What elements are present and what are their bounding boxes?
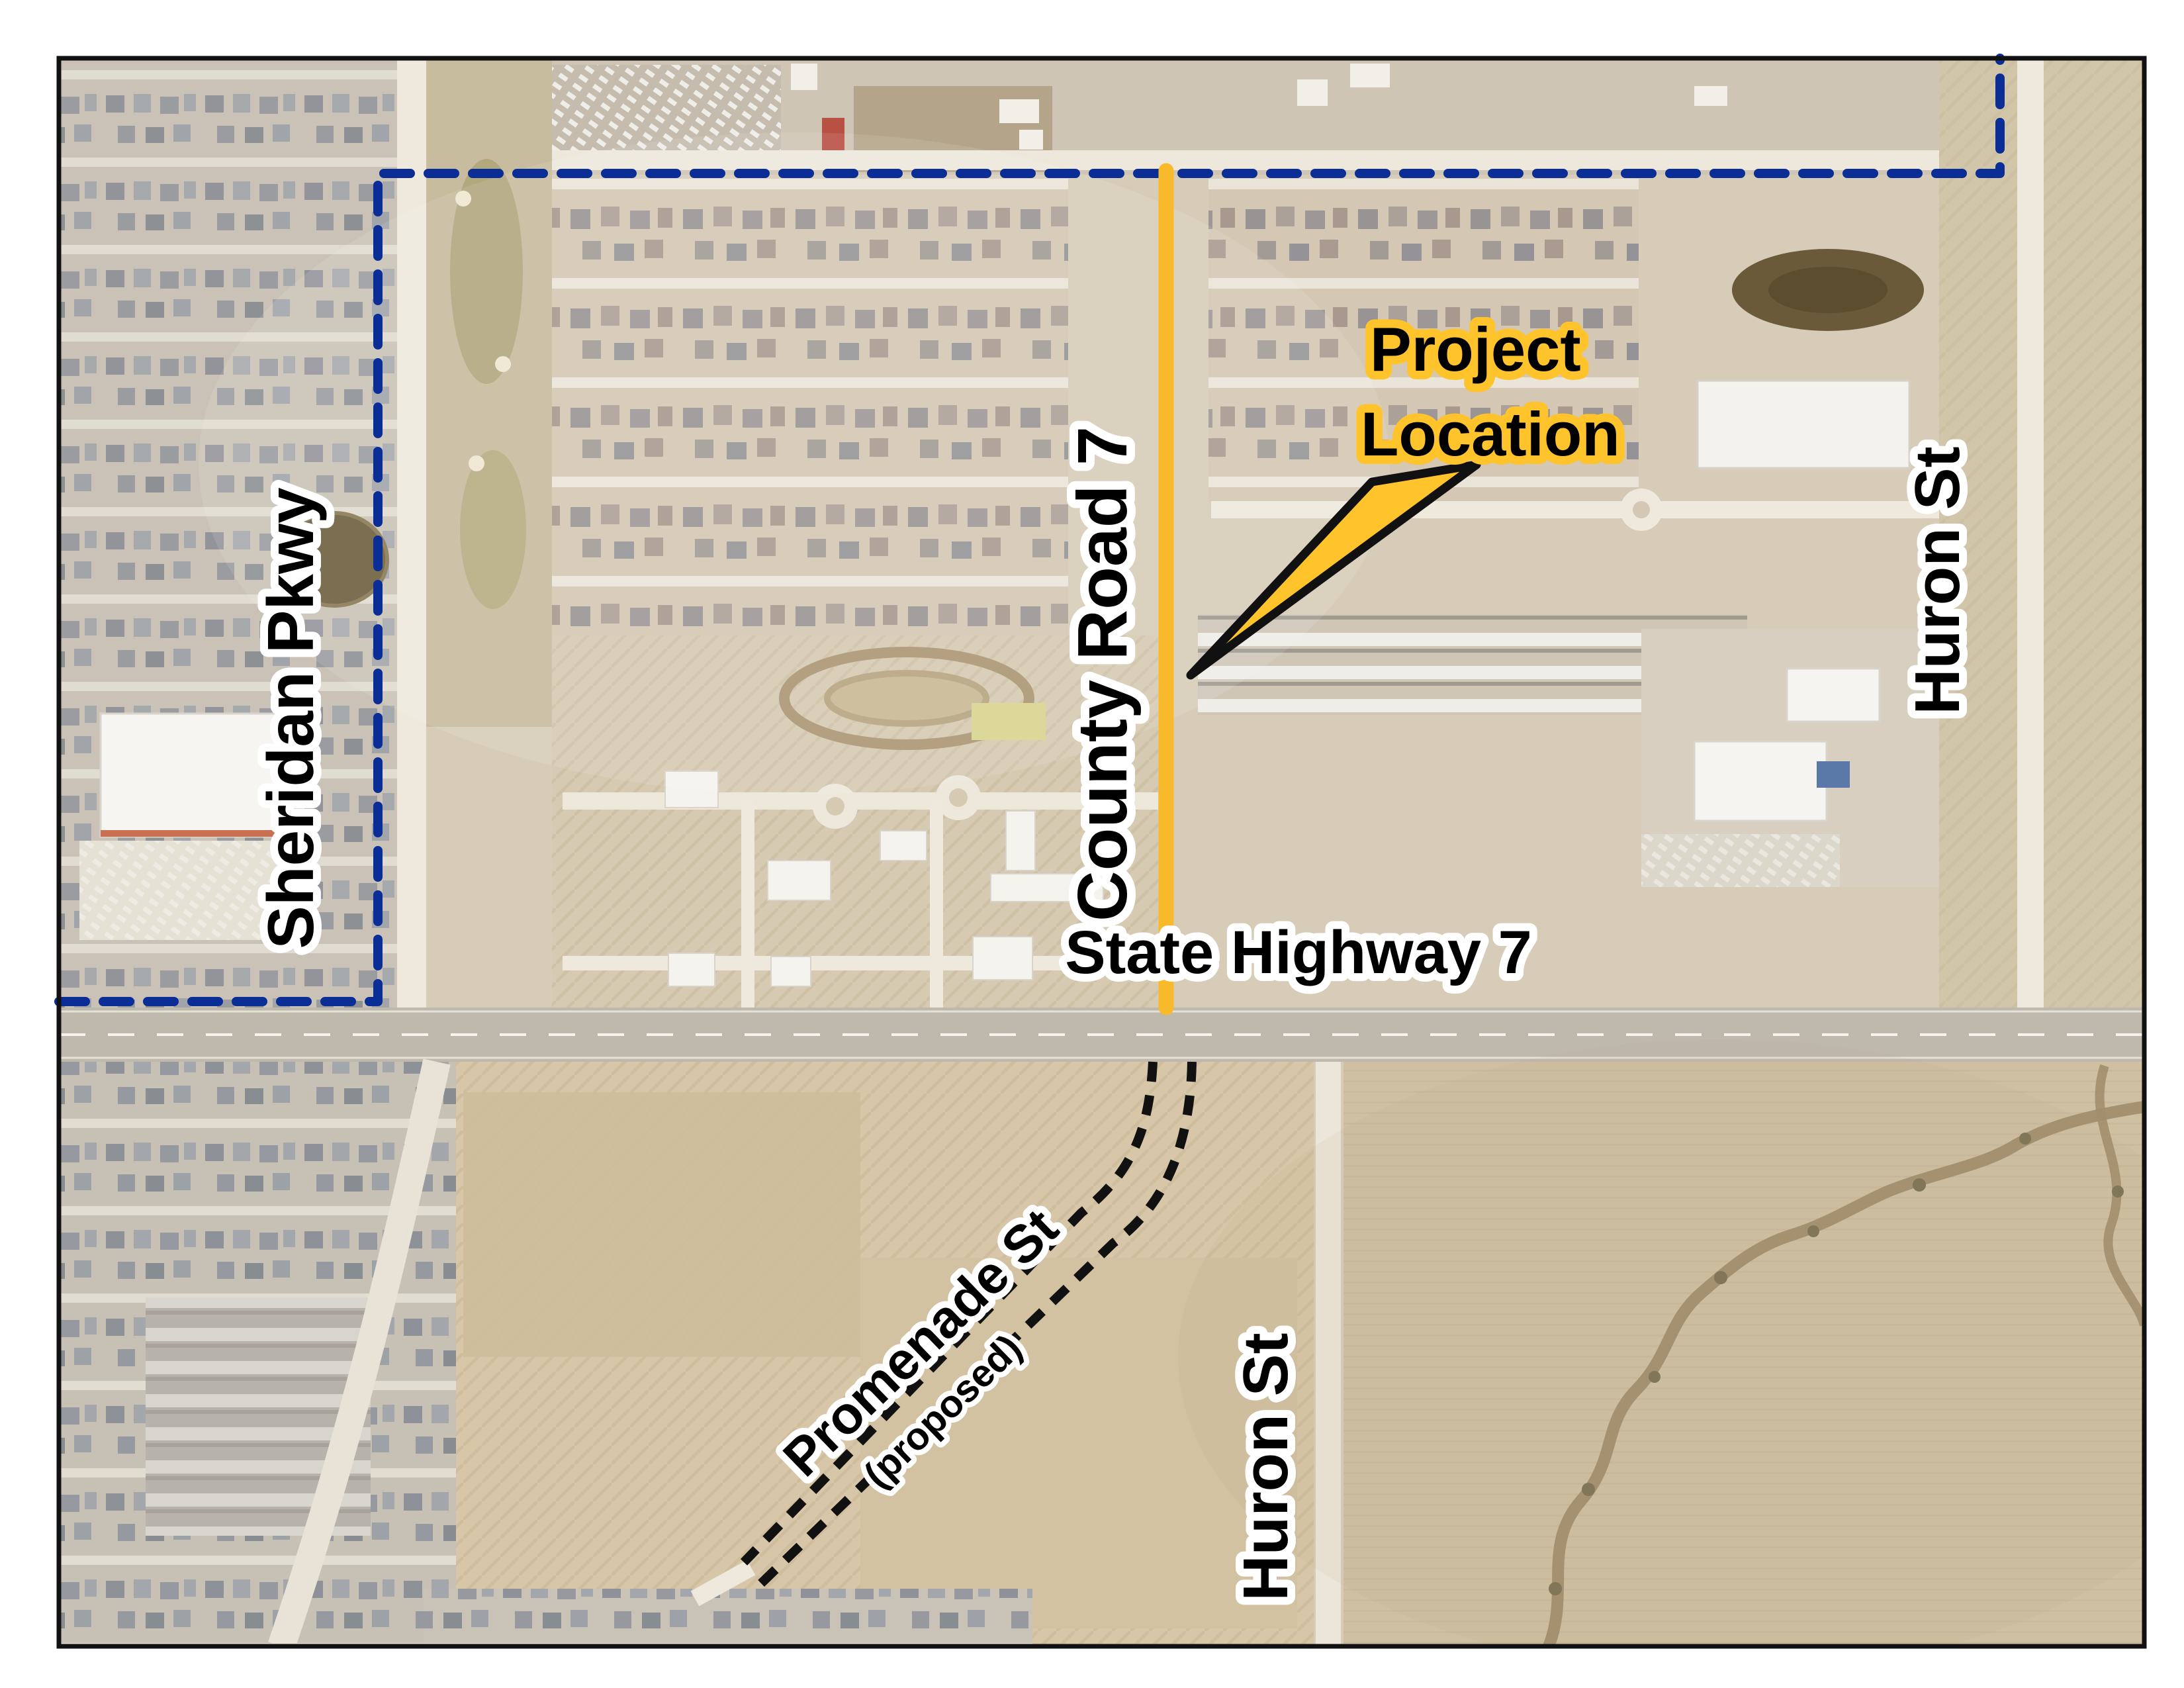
- east-roundabout-island: [1633, 501, 1650, 518]
- state-highway-7-label: State Highway 7: [1065, 919, 1532, 986]
- hospital-building: [1694, 741, 1827, 821]
- farm-shed-2: [1019, 130, 1043, 150]
- project-location-label-line2: Location: [1361, 399, 1620, 469]
- farm-shed: [999, 99, 1039, 123]
- map-canvas: Project Location County Road 7 State Hig…: [0, 0, 2184, 1688]
- medical-building: [1787, 669, 1880, 722]
- farm-house: [791, 64, 817, 90]
- huron-st-south-label: Huron St: [1230, 1333, 1301, 1601]
- pond-east-core: [1768, 267, 1888, 313]
- shed-2: [1350, 64, 1390, 87]
- project-location-label-line1: Project: [1370, 314, 1581, 384]
- big-box-store-trim: [101, 830, 277, 837]
- county-road-7-label: County Road 7: [1064, 426, 1142, 921]
- big-box-store: [101, 714, 277, 837]
- roundabout-2-island: [949, 788, 968, 807]
- warehouse: [1698, 381, 1909, 468]
- project-location-map-figure: Project Location County Road 7 State Hig…: [0, 0, 2184, 1688]
- shed-3: [1694, 86, 1727, 106]
- roundabout-island: [826, 797, 844, 816]
- east-parking-cars: [1641, 834, 1840, 887]
- shed: [1297, 79, 1328, 106]
- sheridan-pkwy-label: Sheridan Pkwy: [254, 487, 327, 949]
- south-strip-houses-pattern: [424, 1589, 1032, 1646]
- blue-roof: [1817, 761, 1850, 788]
- plowed-field: [463, 1092, 860, 1357]
- huron-st-east-label: Huron St: [1902, 446, 1973, 714]
